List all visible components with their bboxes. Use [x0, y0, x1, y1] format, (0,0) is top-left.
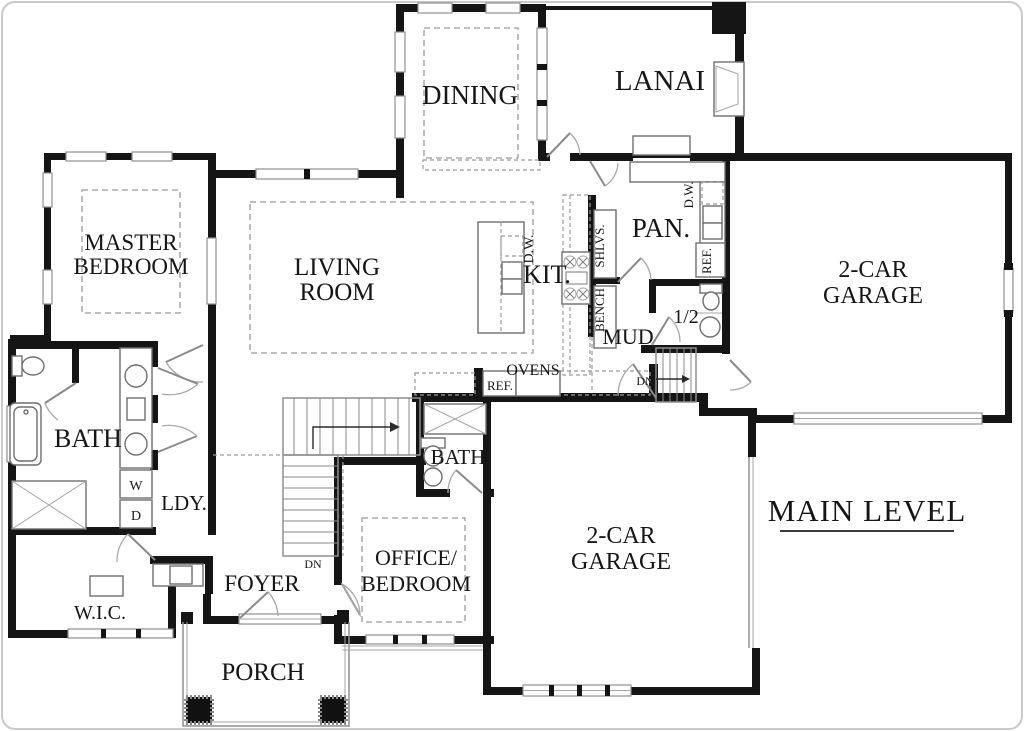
- master-vanity: [120, 348, 152, 468]
- label-shelves: SHLVS.: [592, 224, 607, 267]
- lanai-window-seat: [633, 136, 690, 155]
- island-sink-basin1: [502, 262, 522, 279]
- kitchen-south-counter: [415, 373, 475, 395]
- label-dining: DINING: [422, 80, 518, 110]
- office-furniture-outline: [362, 518, 465, 622]
- master-toilet-icon: [12, 356, 44, 376]
- stair-direction-arrow: [313, 427, 390, 449]
- side-stoop: [342, 646, 483, 650]
- label-dn-foyer: DN: [304, 557, 322, 571]
- bottom-garage-door: [523, 685, 631, 696]
- label-pantry-dw: D.W.: [681, 182, 696, 209]
- laundry-door: [158, 425, 197, 452]
- front-door-threshold: [239, 614, 321, 624]
- label-office-1: OFFICE/: [375, 545, 458, 570]
- master-bedroom-door: [166, 345, 203, 382]
- label-island-dw: D.W.: [522, 234, 537, 263]
- label-living-1: LIVING: [294, 254, 380, 281]
- pantry-door: [618, 258, 651, 282]
- hall-nook-door: [590, 161, 618, 186]
- drop-zone-counter: [153, 564, 203, 586]
- sink-icon: [700, 317, 720, 337]
- label-garage-bottom-2: GARAGE: [571, 549, 671, 575]
- right-garage-entry-door: [730, 360, 751, 390]
- plan-title: MAIN LEVEL: [768, 493, 967, 531]
- floor-plan-page: DINING LANAI MASTER BEDROOM LIVING ROOM …: [0, 0, 1024, 731]
- porch-column: [186, 697, 212, 723]
- bottom-garage-open-wall: [749, 457, 753, 648]
- wic-shelf: [90, 576, 123, 596]
- label-ovens: OVENS: [506, 362, 559, 379]
- island-sink-basin2: [502, 279, 522, 294]
- dashed-features: [82, 28, 650, 622]
- label-dryer: D: [131, 509, 141, 524]
- label-garage-right-2: GARAGE: [823, 283, 923, 309]
- label-master-2: BEDROOM: [73, 254, 188, 279]
- label-half-bath: 1/2: [673, 306, 699, 328]
- master-tub-icon: [10, 403, 41, 465]
- kitchen-north-counter: [423, 160, 540, 170]
- sink-icon: [424, 468, 442, 486]
- toilet-icon: [703, 292, 719, 310]
- kitchen-island: [478, 222, 524, 333]
- master-shower-icon: [12, 481, 86, 529]
- pantry-sink-basin1: [703, 206, 722, 223]
- hall-bath-door: [448, 470, 482, 493]
- label-pantry-ref: REF.: [699, 248, 714, 274]
- main-staircase: [283, 398, 420, 556]
- label-pantry: PAN.: [632, 213, 690, 243]
- label-washer: W: [129, 479, 143, 494]
- label-ref-kitchen: REF.: [487, 378, 513, 393]
- toilet-room-door: [45, 383, 76, 420]
- label-foyer: FOYER: [224, 571, 300, 596]
- sink-icon: [125, 433, 147, 455]
- label-dn-basement: DN: [636, 374, 654, 388]
- master-bath-door: [158, 368, 198, 395]
- sink-icon: [170, 566, 192, 584]
- label-laundry: LDY.: [161, 491, 207, 515]
- sink-icon: [125, 365, 147, 387]
- fireplace-icon: [714, 62, 744, 116]
- label-living-2: ROOM: [299, 279, 374, 306]
- wic-door: [117, 534, 155, 562]
- label-office-2: BEDROOM: [361, 571, 471, 596]
- label-wic: W.I.C.: [74, 602, 126, 624]
- label-master-1: MASTER: [84, 230, 178, 255]
- label-master-bath: BATH: [54, 424, 122, 453]
- floor-plan-drawing: DINING LANAI MASTER BEDROOM LIVING ROOM …: [0, 0, 1024, 731]
- label-garage-right-1: 2-CAR: [838, 257, 907, 283]
- label-lanai: LANAI: [615, 65, 705, 97]
- pantry-sink-basin2: [703, 223, 722, 239]
- label-hall-bath: BATH: [431, 445, 486, 469]
- porch-column: [320, 697, 346, 723]
- label-mud: MUD: [602, 324, 653, 349]
- page-title: MAIN LEVEL: [768, 493, 967, 528]
- label-porch: PORCH: [221, 659, 304, 686]
- stair-treads-lower: [283, 466, 338, 543]
- label-garage-bottom-1: 2-CAR: [586, 523, 655, 549]
- right-garage-door: [794, 413, 982, 424]
